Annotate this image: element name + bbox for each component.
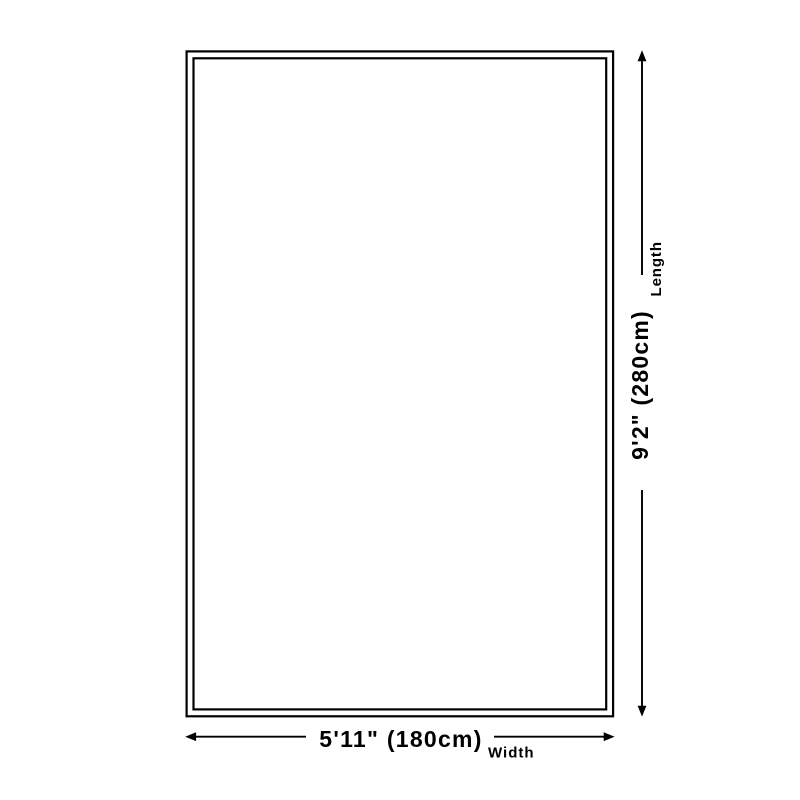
svg-text:Length: Length (648, 241, 665, 296)
svg-text:Width: Width (488, 745, 535, 762)
svg-text:9'2" (280cm): 9'2" (280cm) (627, 310, 653, 460)
svg-text:5'11" (180cm): 5'11" (180cm) (319, 726, 482, 752)
